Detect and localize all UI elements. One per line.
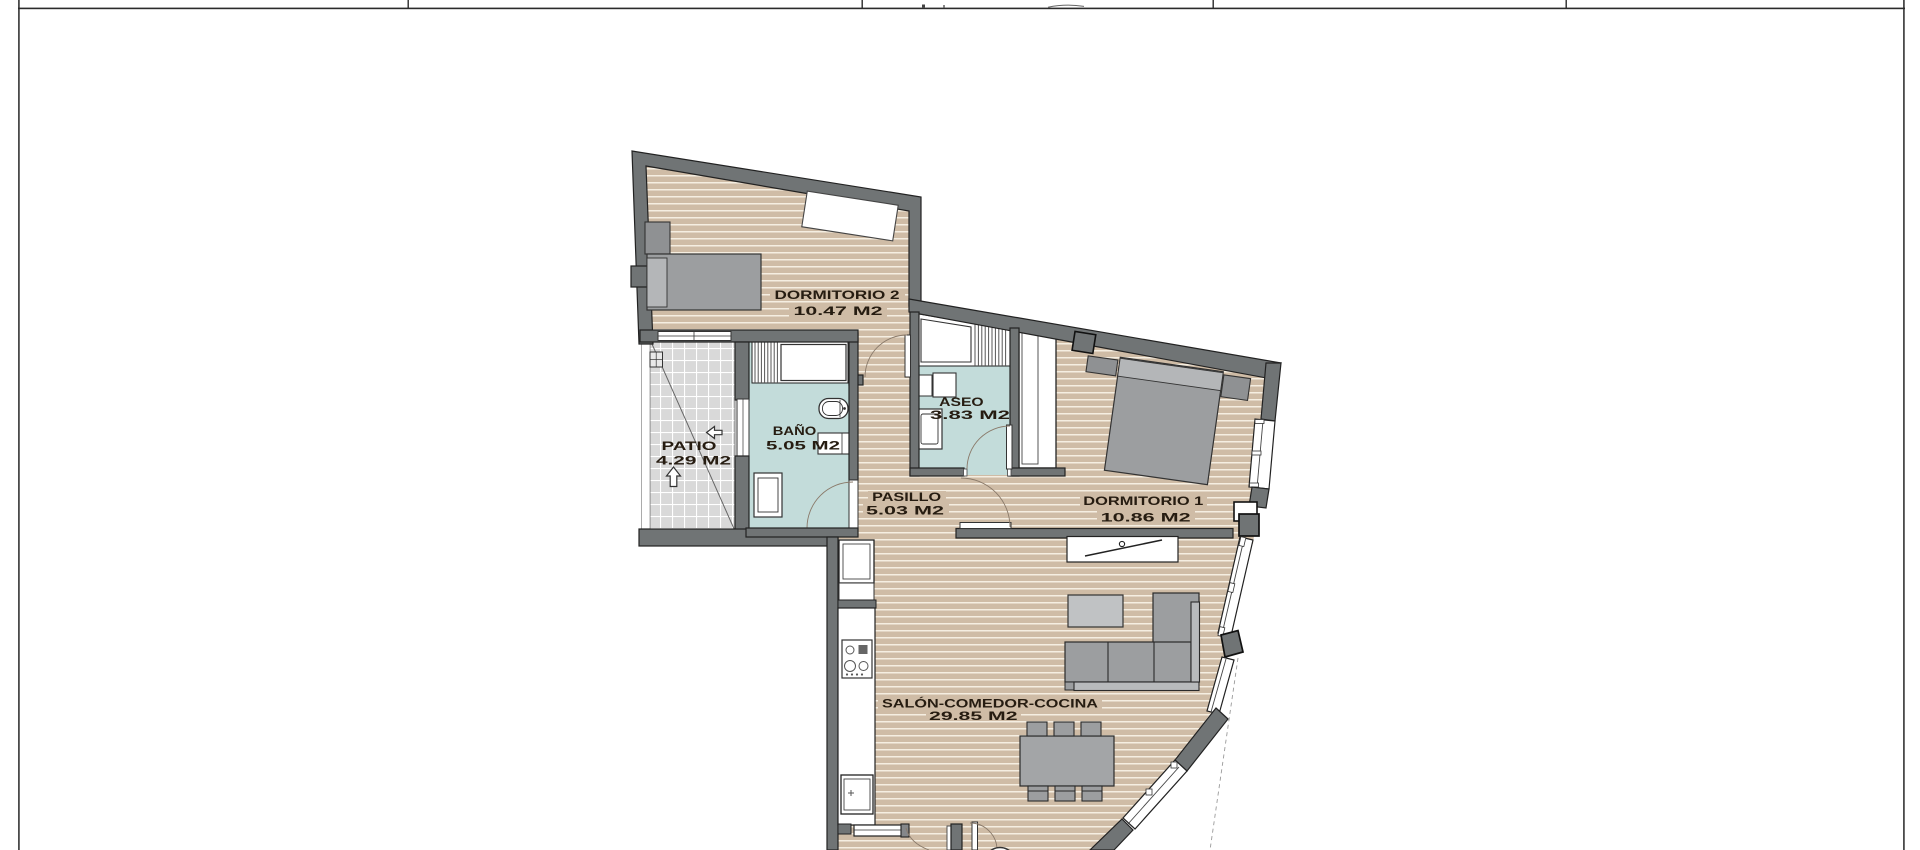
- svg-text:PASILLO: PASILLO: [872, 492, 941, 504]
- svg-text:SALÓN-COMEDOR-COCINA: SALÓN-COMEDOR-COCINA: [882, 698, 1098, 711]
- svg-text:10.86 M2: 10.86 M2: [1101, 513, 1191, 525]
- svg-text:5.05 M2: 5.05 M2: [766, 441, 840, 453]
- svg-text:BAÑO: BAÑO: [773, 425, 817, 438]
- svg-text:5.03 M2: 5.03 M2: [866, 506, 944, 518]
- svg-text:ASEO: ASEO: [939, 397, 984, 409]
- svg-text:PATIO: PATIO: [662, 441, 717, 453]
- svg-text:DORMITORIO 1: DORMITORIO 1: [1083, 496, 1204, 508]
- svg-text:DORMITORIO 2: DORMITORIO 2: [775, 290, 900, 302]
- svg-text:29.85 M2: 29.85 M2: [929, 711, 1018, 723]
- svg-text:10.47 M2: 10.47 M2: [794, 306, 883, 318]
- svg-text:3.83 M2: 3.83 M2: [930, 410, 1010, 422]
- svg-text:4.29 M2: 4.29 M2: [656, 456, 731, 468]
